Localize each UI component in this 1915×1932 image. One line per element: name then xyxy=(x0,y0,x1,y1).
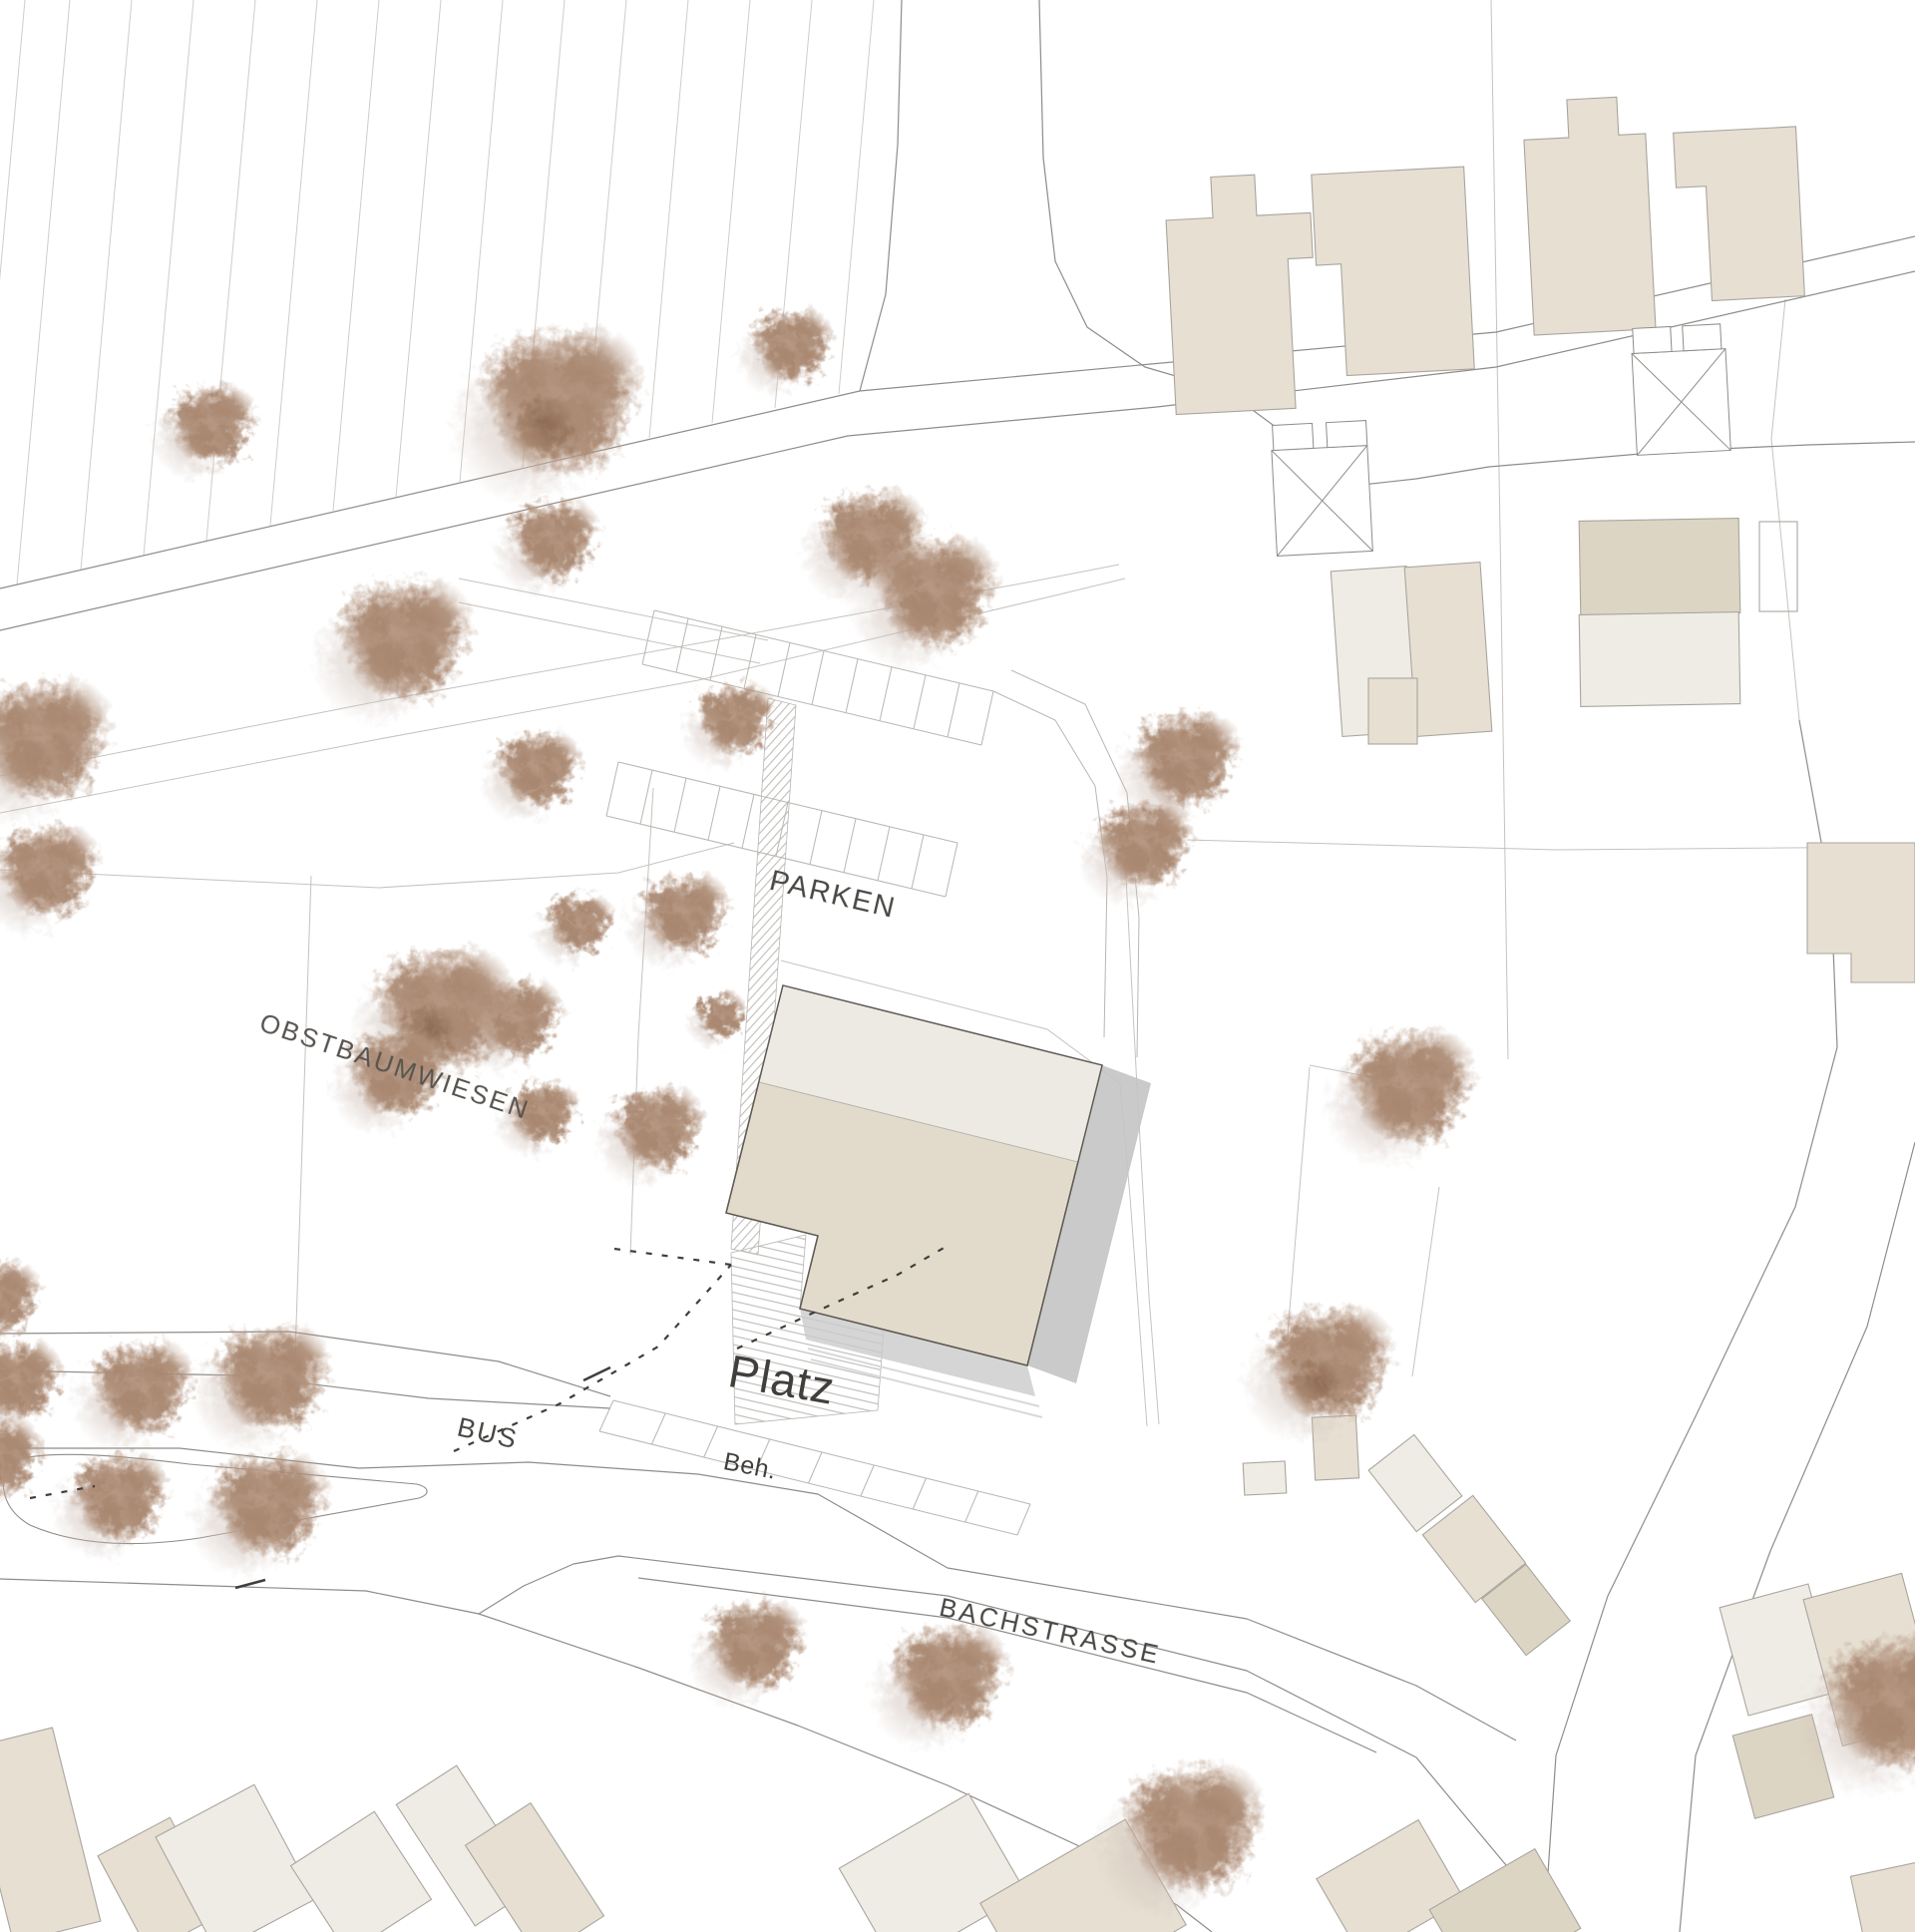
tree xyxy=(594,1084,706,1186)
tree-canopy-dark xyxy=(1292,1354,1346,1409)
building xyxy=(1579,612,1740,707)
building xyxy=(0,1728,101,1932)
stall-divider xyxy=(913,1478,926,1509)
tree xyxy=(0,1259,42,1350)
stall-divider xyxy=(1017,1504,1030,1535)
tree xyxy=(312,577,475,726)
field-strips-layer xyxy=(0,0,874,595)
tree xyxy=(0,676,114,826)
tree-canopy xyxy=(649,903,699,953)
building xyxy=(1368,678,1417,744)
field-strip-line xyxy=(649,0,688,438)
parking-row xyxy=(599,1400,1030,1535)
tree-canopy xyxy=(504,758,552,806)
building xyxy=(1674,127,1805,302)
tree xyxy=(681,681,778,770)
building xyxy=(1312,167,1474,377)
tree xyxy=(72,1339,196,1452)
stall-divider xyxy=(599,1400,613,1431)
tree xyxy=(1077,798,1195,906)
field-strip-line xyxy=(270,0,317,526)
stall-divider xyxy=(861,1465,874,1496)
parcel-line xyxy=(294,876,311,1384)
tree xyxy=(685,991,747,1048)
parcel-line xyxy=(1287,1067,1310,1347)
site-plan-svg: OBSTBAUMWIESENPARKENPlatzBeh.BUSBACHSTRA… xyxy=(0,0,1915,1932)
field-strip-line xyxy=(81,0,132,570)
road-edge xyxy=(1680,1142,1915,1932)
tree-canopy xyxy=(1136,1810,1216,1890)
stall-divider xyxy=(744,634,756,688)
building xyxy=(1522,96,1656,335)
stall-divider xyxy=(651,1413,665,1444)
field-strip-line xyxy=(396,0,441,497)
field-strip-line xyxy=(0,0,25,595)
tree-canopy xyxy=(1359,1071,1431,1143)
carport-shed xyxy=(1633,326,1672,353)
tree xyxy=(1241,1303,1395,1444)
carport-shed xyxy=(1683,324,1722,351)
carport-shed xyxy=(1327,421,1367,448)
tree-canopy xyxy=(101,1374,159,1432)
tree xyxy=(533,892,614,966)
tree-canopy xyxy=(1105,832,1160,887)
stall-divider xyxy=(878,827,890,881)
building xyxy=(1759,522,1797,611)
parcel-line xyxy=(0,843,734,888)
stall-divider xyxy=(606,762,618,816)
tree-canopy xyxy=(221,1490,287,1556)
tree-canopy xyxy=(704,709,749,754)
stall-divider xyxy=(640,770,652,824)
stall-divider xyxy=(704,1426,718,1457)
building xyxy=(1807,843,1915,982)
field-strip-line xyxy=(17,0,70,584)
carport xyxy=(1631,324,1731,456)
tree xyxy=(152,383,259,482)
road-edge xyxy=(479,1556,618,1614)
tree-canopy xyxy=(759,335,805,381)
carport xyxy=(1271,421,1373,557)
tree-canopy xyxy=(350,623,426,699)
parcel-line xyxy=(1771,299,1799,720)
tree xyxy=(449,324,646,505)
tree xyxy=(480,729,582,824)
stall-divider xyxy=(846,659,858,713)
road-edge xyxy=(860,0,902,391)
tree-canopy xyxy=(6,858,64,916)
tree xyxy=(191,1323,333,1452)
tree-canopy xyxy=(621,1117,673,1169)
building xyxy=(1579,519,1740,616)
stall-divider xyxy=(880,667,892,721)
building xyxy=(1243,1461,1287,1495)
building xyxy=(1164,172,1321,414)
tree xyxy=(687,1598,807,1708)
tree-canopy xyxy=(177,414,226,464)
site-plan: OBSTBAUMWIESENPARKENPlatzBeh.BUSBACHSTRA… xyxy=(0,0,1915,1932)
stall-divider xyxy=(708,786,720,840)
parcel-line xyxy=(1491,0,1508,1059)
building xyxy=(1850,1859,1915,1932)
stall-divider xyxy=(946,843,957,897)
tree-canopy xyxy=(902,1663,967,1729)
carport-shed xyxy=(1273,423,1314,450)
tree-canopy xyxy=(1144,746,1204,806)
building xyxy=(290,1811,431,1932)
tree xyxy=(1323,1026,1477,1168)
stall-divider xyxy=(812,651,824,705)
tree xyxy=(869,1622,1010,1751)
tree xyxy=(735,306,834,397)
stall-divider xyxy=(948,683,959,737)
tree-canopy xyxy=(553,915,590,953)
stall-divider xyxy=(810,811,822,865)
stall-divider xyxy=(809,1452,823,1483)
tree-canopy xyxy=(519,529,569,579)
dashed-path xyxy=(614,1249,731,1265)
stall-divider xyxy=(778,642,790,696)
tree-canopy-dark xyxy=(513,390,582,460)
tree-canopy xyxy=(700,1009,729,1038)
tree-canopy xyxy=(80,1485,136,1541)
stall-divider xyxy=(642,610,654,664)
field-strip-line xyxy=(333,0,379,511)
parcel-line xyxy=(1412,1187,1439,1376)
tree xyxy=(1096,1760,1268,1918)
stall-divider xyxy=(965,1491,978,1522)
tree-canopy xyxy=(716,1633,772,1689)
label-bus: BUS xyxy=(455,1411,522,1454)
parcel-line xyxy=(459,602,760,663)
tree-canopy xyxy=(224,1363,290,1429)
tree xyxy=(0,822,101,936)
stall-divider xyxy=(914,675,926,729)
tree xyxy=(624,872,732,970)
stall-divider xyxy=(844,819,856,873)
path-tick xyxy=(583,1367,610,1380)
stall-divider xyxy=(674,778,686,832)
stall-divider xyxy=(742,794,754,848)
parcel-line xyxy=(1187,840,1915,850)
field-strip-line xyxy=(839,0,874,394)
stall-divider xyxy=(981,691,993,745)
stall-divider xyxy=(912,835,924,889)
tree xyxy=(494,498,601,596)
tree-canopy xyxy=(886,577,956,646)
